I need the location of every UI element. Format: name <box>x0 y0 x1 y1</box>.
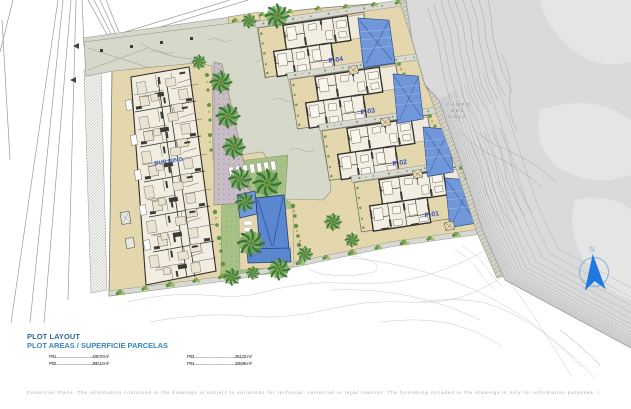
svg-text:P03...........................: P03.....................................… <box>187 354 252 359</box>
svg-text:Comercial Plans. The informati: Comercial Plans. The information contain… <box>27 390 600 395</box>
svg-text:P02...........................: P02.....................................… <box>49 361 109 366</box>
svg-text:P01...........................: P01.....................................… <box>49 354 109 359</box>
svg-text:P04...........................: P04.....................................… <box>187 361 252 366</box>
svg-text:CAMPO: CAMPO <box>446 102 471 107</box>
svg-text:DEL: DEL <box>451 108 465 113</box>
svg-text:N: N <box>589 245 595 254</box>
svg-text:PLOT LAYOUT: PLOT LAYOUT <box>27 332 80 341</box>
svg-text:PLOT AREAS / SUPERFICIE PARCEL: PLOT AREAS / SUPERFICIE PARCELAS <box>27 341 168 350</box>
svg-text:GOLF: GOLF <box>448 114 467 119</box>
